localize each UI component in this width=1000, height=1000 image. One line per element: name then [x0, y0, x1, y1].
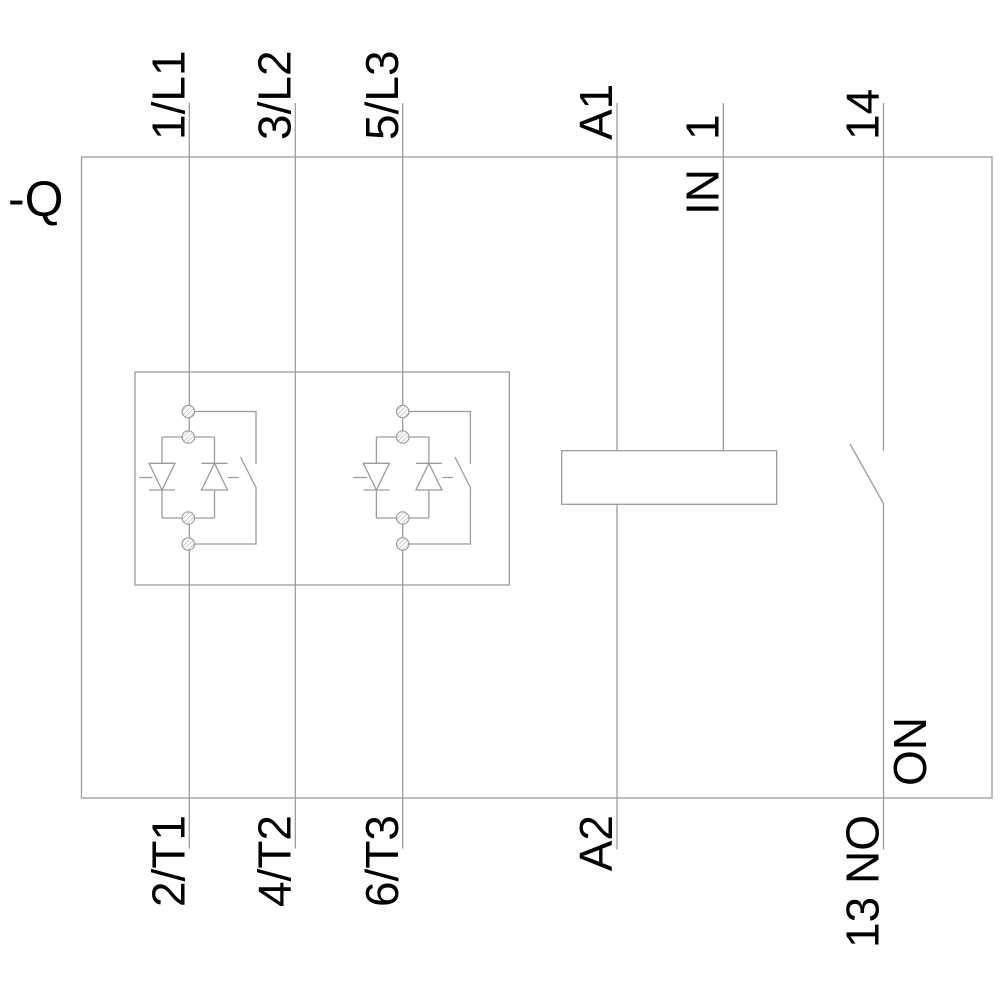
control-unit-box — [562, 451, 777, 505]
device-boundary-box — [82, 157, 993, 798]
terminal-label-1: 1 — [676, 114, 728, 140]
terminal-label-4t2: 4/T2 — [248, 815, 300, 907]
terminal-label-13no: 13 NO — [837, 815, 889, 948]
terminal-label-14: 14 — [837, 89, 889, 140]
thyristor-module-box — [135, 372, 509, 585]
power-lines — [189, 103, 402, 849]
control-input-label: IN — [676, 169, 728, 215]
aux-contact-on-label: ON — [884, 717, 936, 786]
control-unit — [562, 103, 777, 850]
scr-phase-unit-l1 — [139, 405, 257, 550]
terminal-label-2t1: 2/T1 — [142, 815, 194, 907]
soft-starter-schematic: -Q 1/L1 3/L2 5/L3 A1 1 14 IN ON 2/T1 4/T… — [0, 0, 1000, 1000]
aux-no-contact — [850, 103, 884, 850]
no-contact-blade — [850, 444, 884, 504]
terminal-label-3l2: 3/L2 — [248, 50, 300, 140]
thyristor-module — [135, 372, 509, 585]
terminal-label-a2: A2 — [570, 815, 622, 871]
scr-phase-unit-l3 — [353, 405, 471, 550]
terminal-label-6t3: 6/T3 — [356, 815, 408, 907]
terminal-label-a1: A1 — [570, 84, 622, 140]
device-designation-label: -Q — [8, 171, 64, 227]
schematic-canvas: -Q 1/L1 3/L2 5/L3 A1 1 14 IN ON 2/T1 4/T… — [0, 0, 1000, 1000]
terminal-label-5l3: 5/L3 — [356, 50, 408, 140]
terminal-label-1l1: 1/L1 — [142, 50, 194, 140]
